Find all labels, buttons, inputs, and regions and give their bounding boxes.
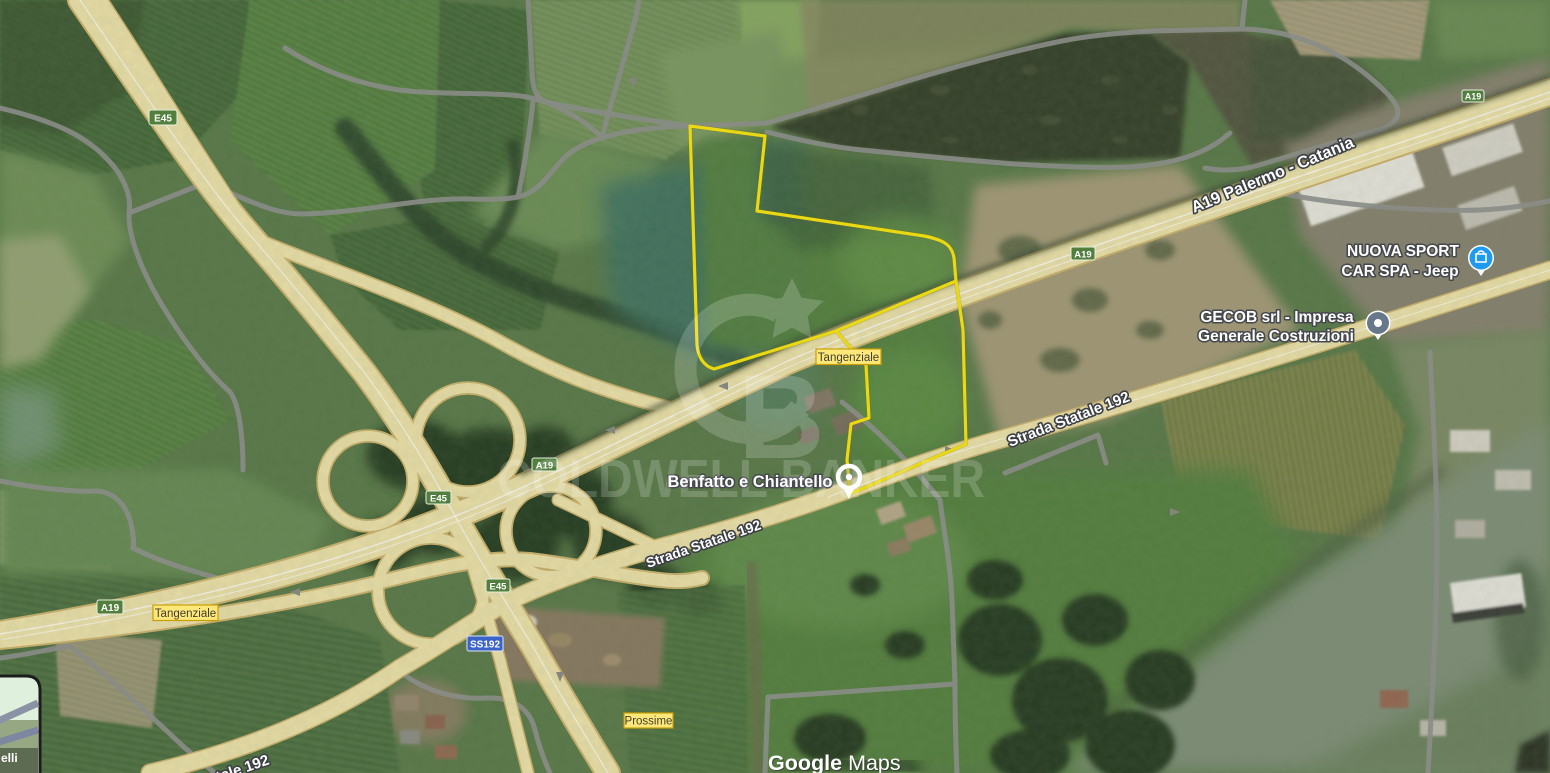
svg-text:GECOB srl - Impresa: GECOB srl - Impresa [1200,309,1354,326]
svg-text:Generale Costruzioni: Generale Costruzioni [1198,328,1354,345]
svg-text:E45: E45 [430,494,448,505]
svg-text:E45: E45 [154,114,172,125]
svg-text:elli: elli [1,751,18,765]
svg-text:Tangenziale: Tangenziale [155,608,216,620]
svg-text:CAR SPA - Jeep: CAR SPA - Jeep [1341,263,1458,280]
svg-text:NUOVA SPORT: NUOVA SPORT [1347,243,1459,260]
svg-text:A19: A19 [1074,250,1091,261]
svg-text:GoogleMaps: GoogleMaps [768,751,901,773]
svg-text:Prossime: Prossime [625,716,673,728]
svg-text:A19: A19 [1465,92,1482,102]
svg-text:A19: A19 [101,603,120,614]
svg-text:SS192: SS192 [470,640,500,651]
svg-text:SM: SM [800,432,817,444]
svg-text:COLDWELL BANKER: COLDWELL BANKER [497,449,985,509]
svg-text:E45: E45 [490,582,508,593]
svg-text:Tangenziale: Tangenziale [818,352,879,364]
